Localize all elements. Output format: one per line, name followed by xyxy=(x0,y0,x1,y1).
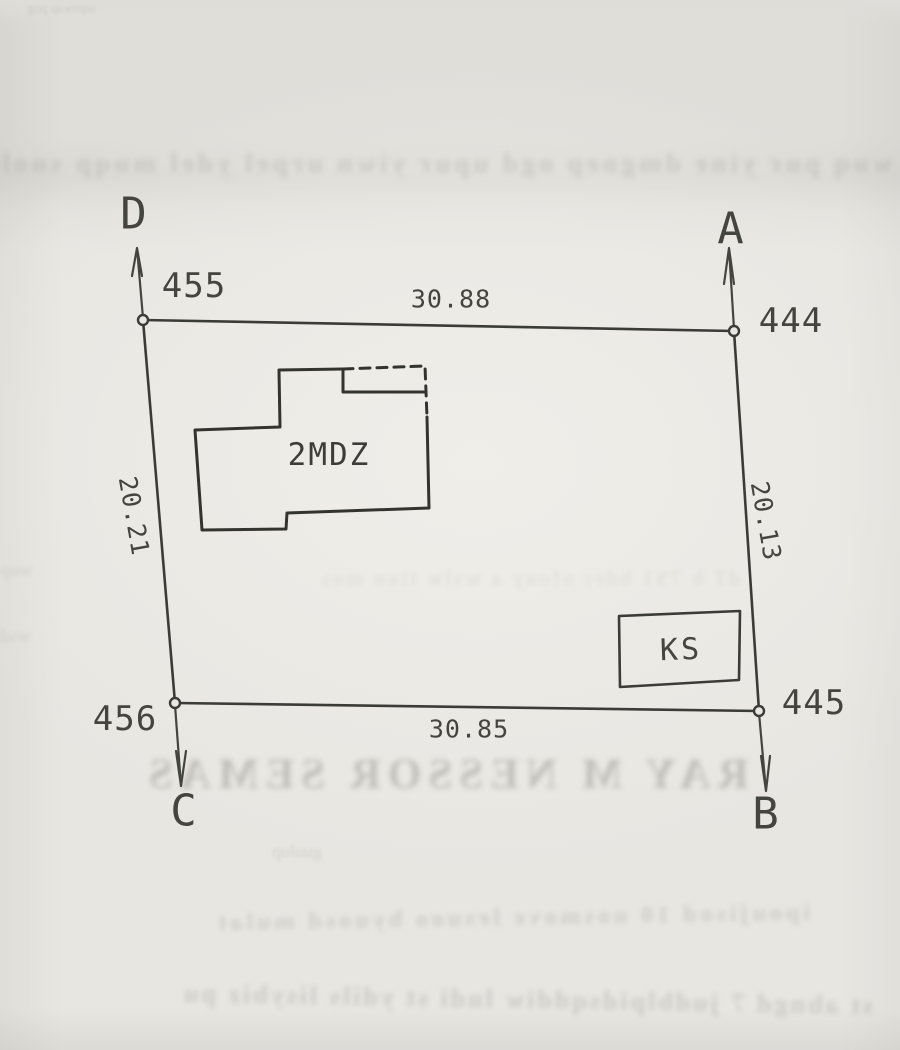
corner-marker-445 xyxy=(754,706,764,716)
corner-letter-b: B xyxy=(752,789,780,840)
boundary-top-line xyxy=(143,320,734,331)
corner-marker-455 xyxy=(138,315,148,325)
arrow-to-d xyxy=(132,248,143,318)
corner-letter-c: C xyxy=(170,786,198,837)
arrow-to-c xyxy=(175,705,186,786)
corner-marker-444 xyxy=(729,326,739,336)
arrow-to-a xyxy=(724,248,734,329)
corner-marker-456 xyxy=(170,698,180,708)
corner-letter-a: A xyxy=(717,204,745,255)
outbuilding-label: KS xyxy=(659,632,702,668)
point-number-456: 456 xyxy=(93,699,157,739)
point-number-455: 455 xyxy=(162,266,226,306)
point-number-444: 444 xyxy=(759,301,823,341)
building-inner-wall xyxy=(343,369,426,392)
point-number-445: 445 xyxy=(782,683,846,723)
corner-letter-d: D xyxy=(120,189,148,240)
side-length-bottom: 30.85 xyxy=(429,715,509,744)
side-length-top: 30.88 xyxy=(411,285,491,314)
arrow-to-b xyxy=(759,713,770,791)
boundary-bottom-line xyxy=(175,703,759,711)
building-label: 2MDZ xyxy=(288,437,371,473)
scanned-survey-sketch-page: uqmwap pog wuq pur yine dmgnep ogd upur … xyxy=(0,0,900,1050)
